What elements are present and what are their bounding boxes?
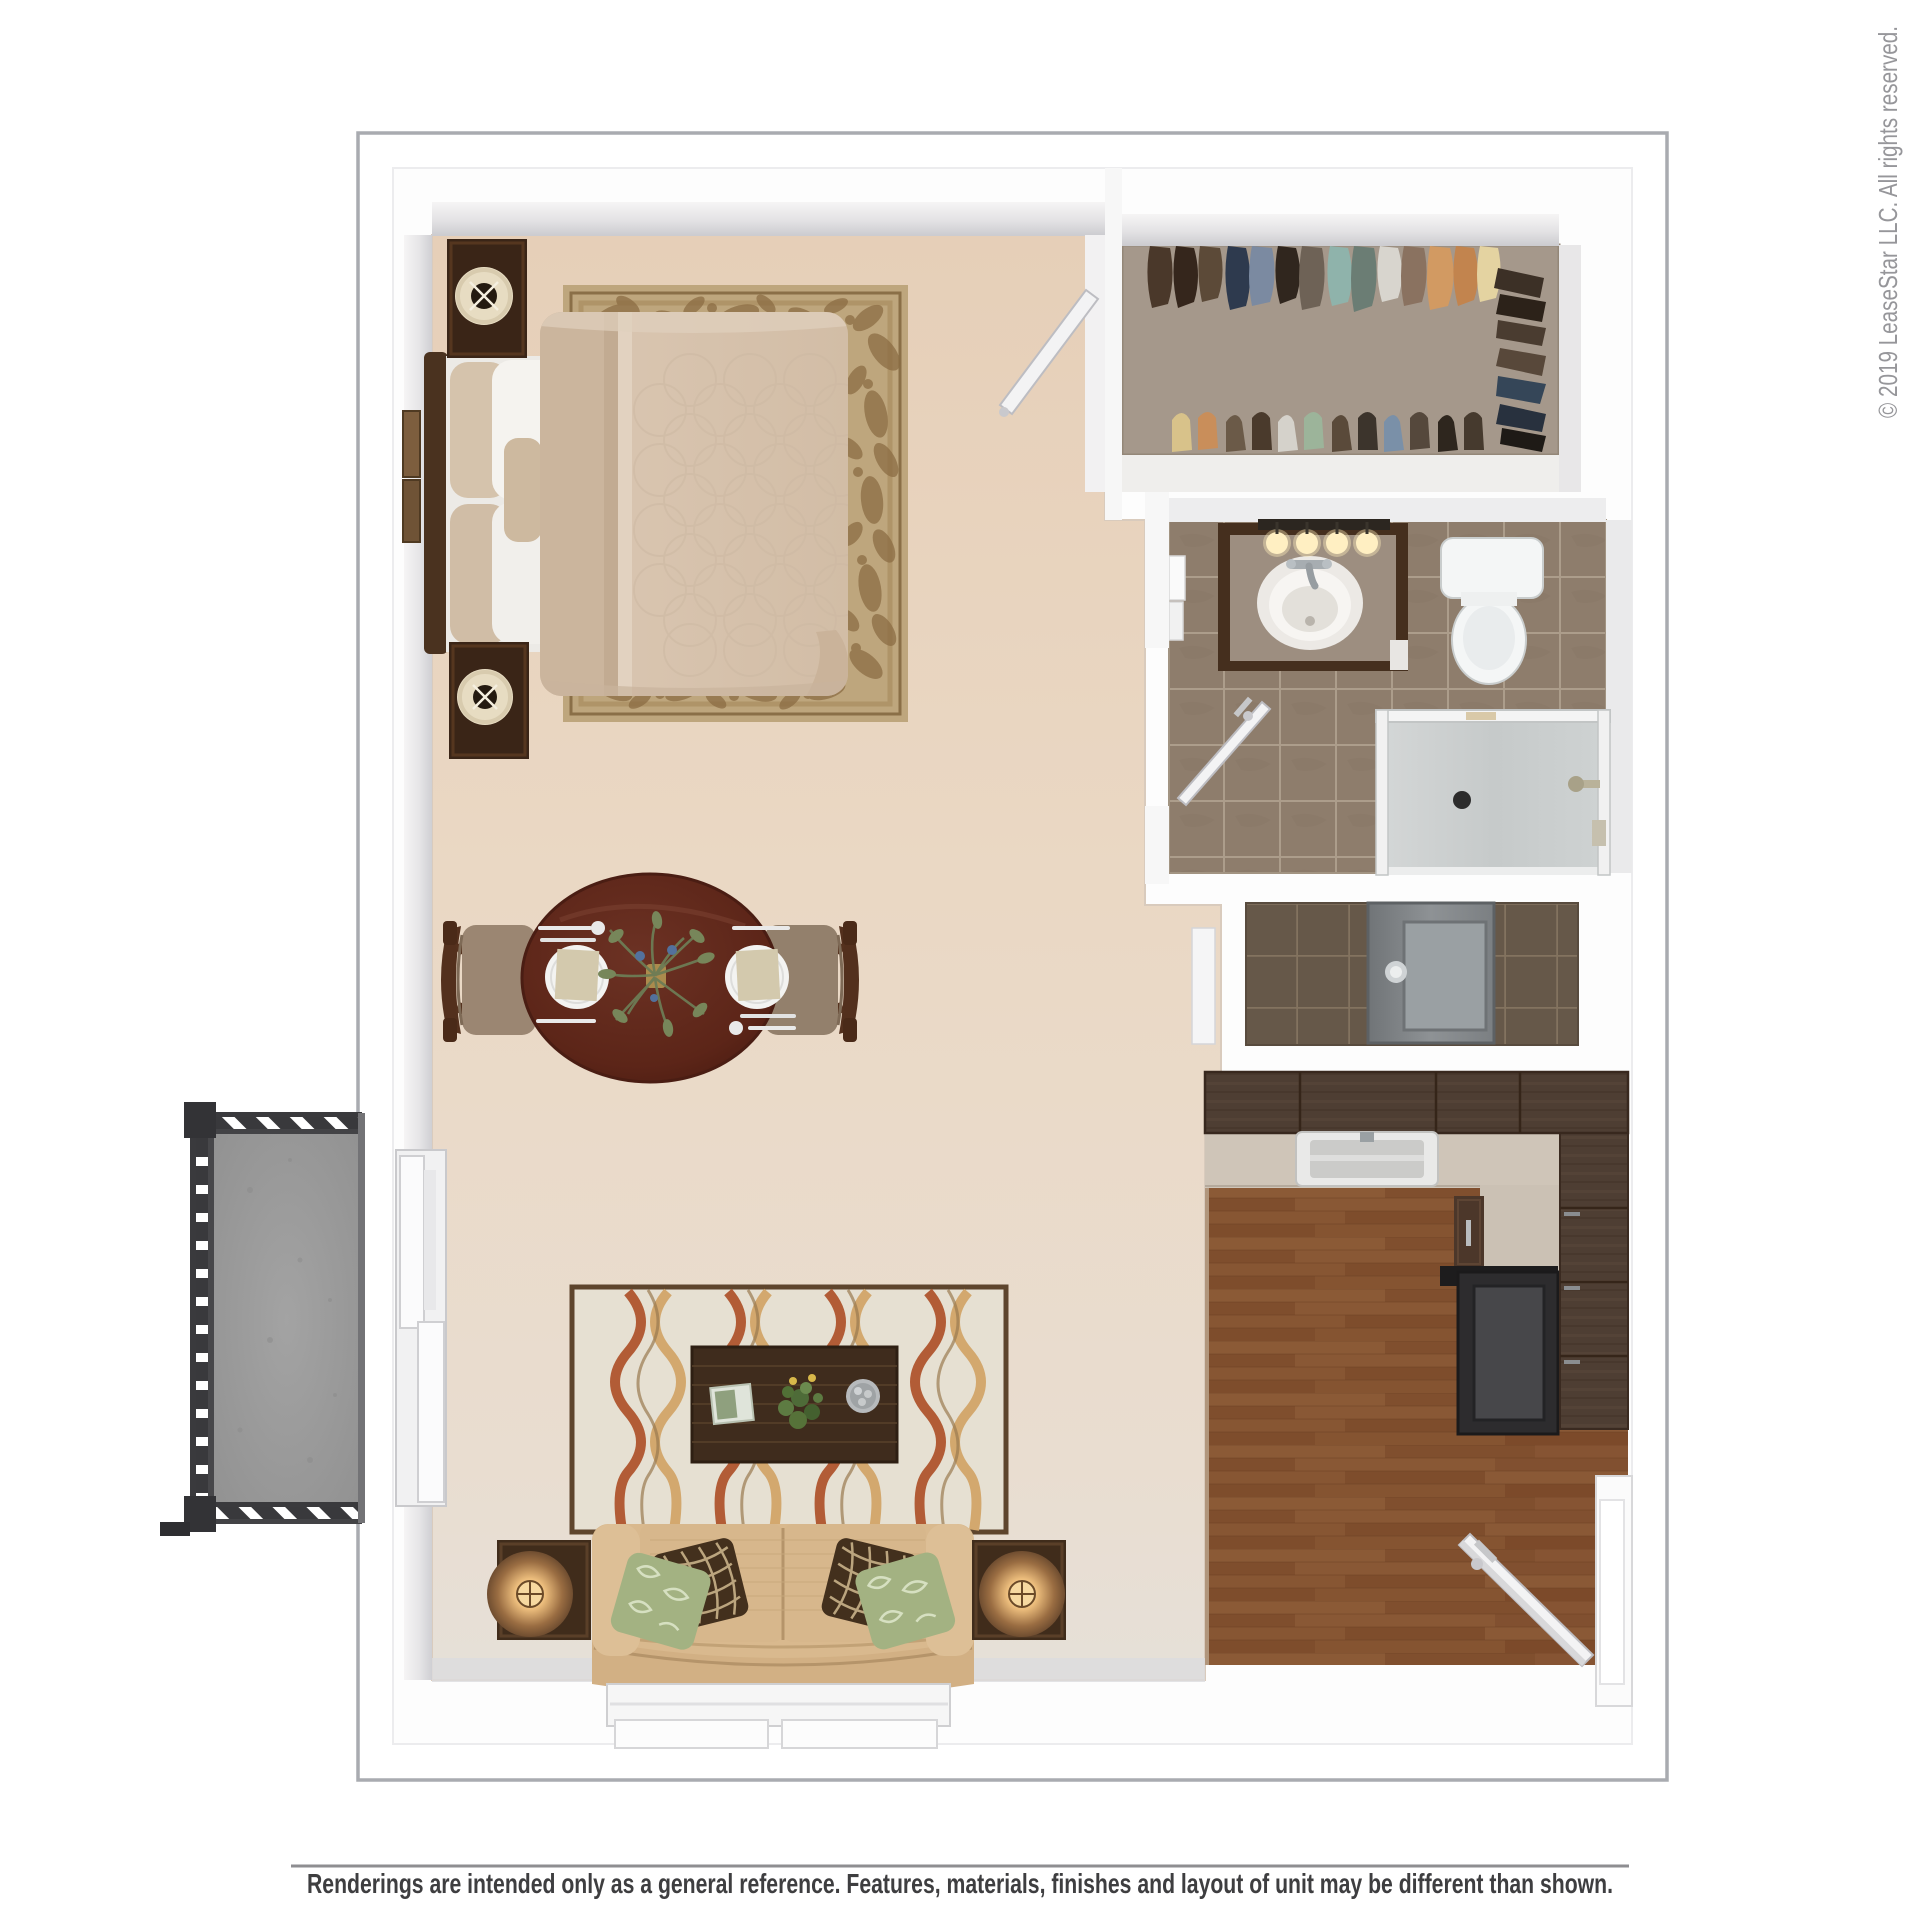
svg-text:Renderings are intended only a: Renderings are intended only as a genera… [307, 1868, 1613, 1899]
svg-text:© 2019 LeaseStar LLC. All righ: © 2019 LeaseStar LLC. All rights reserve… [1873, 26, 1903, 418]
